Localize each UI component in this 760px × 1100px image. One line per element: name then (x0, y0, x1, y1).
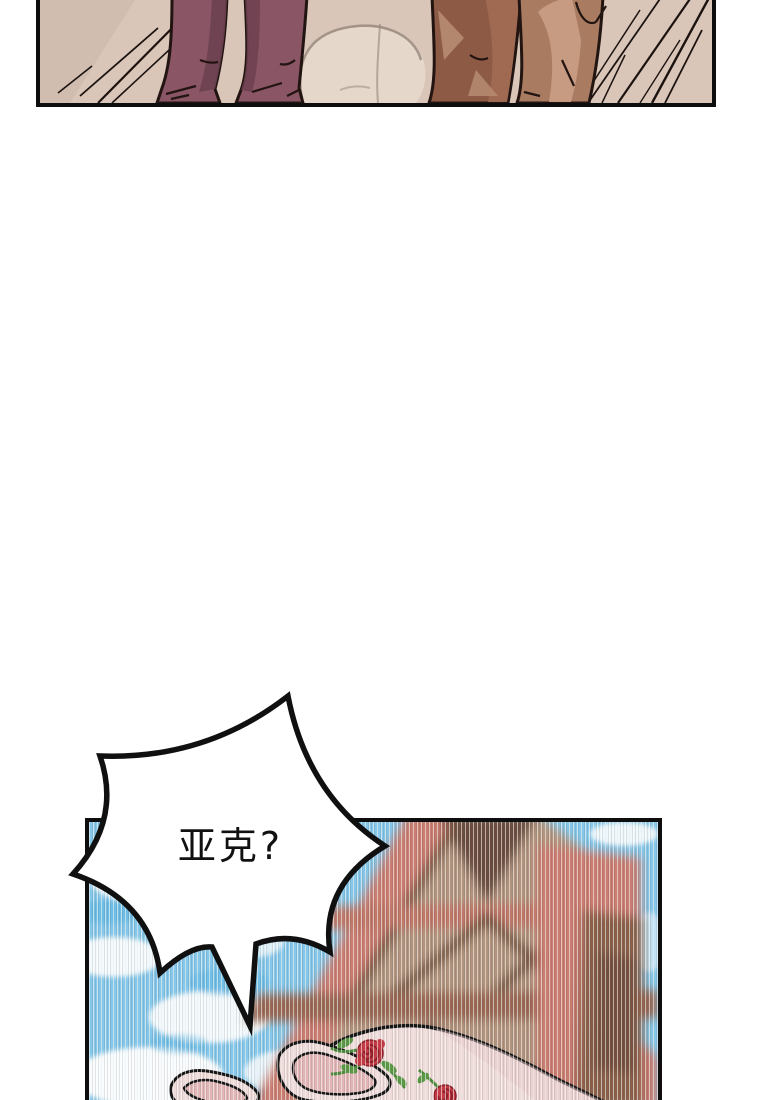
comic-page: 亚克? (0, 0, 760, 1100)
street-scene (40, 0, 712, 103)
panel-street-legs (36, 0, 716, 107)
rose-flower (434, 1085, 456, 1100)
wing-timber-dark (593, 952, 635, 1074)
speech-bubble-text: 亚克? (138, 822, 323, 870)
